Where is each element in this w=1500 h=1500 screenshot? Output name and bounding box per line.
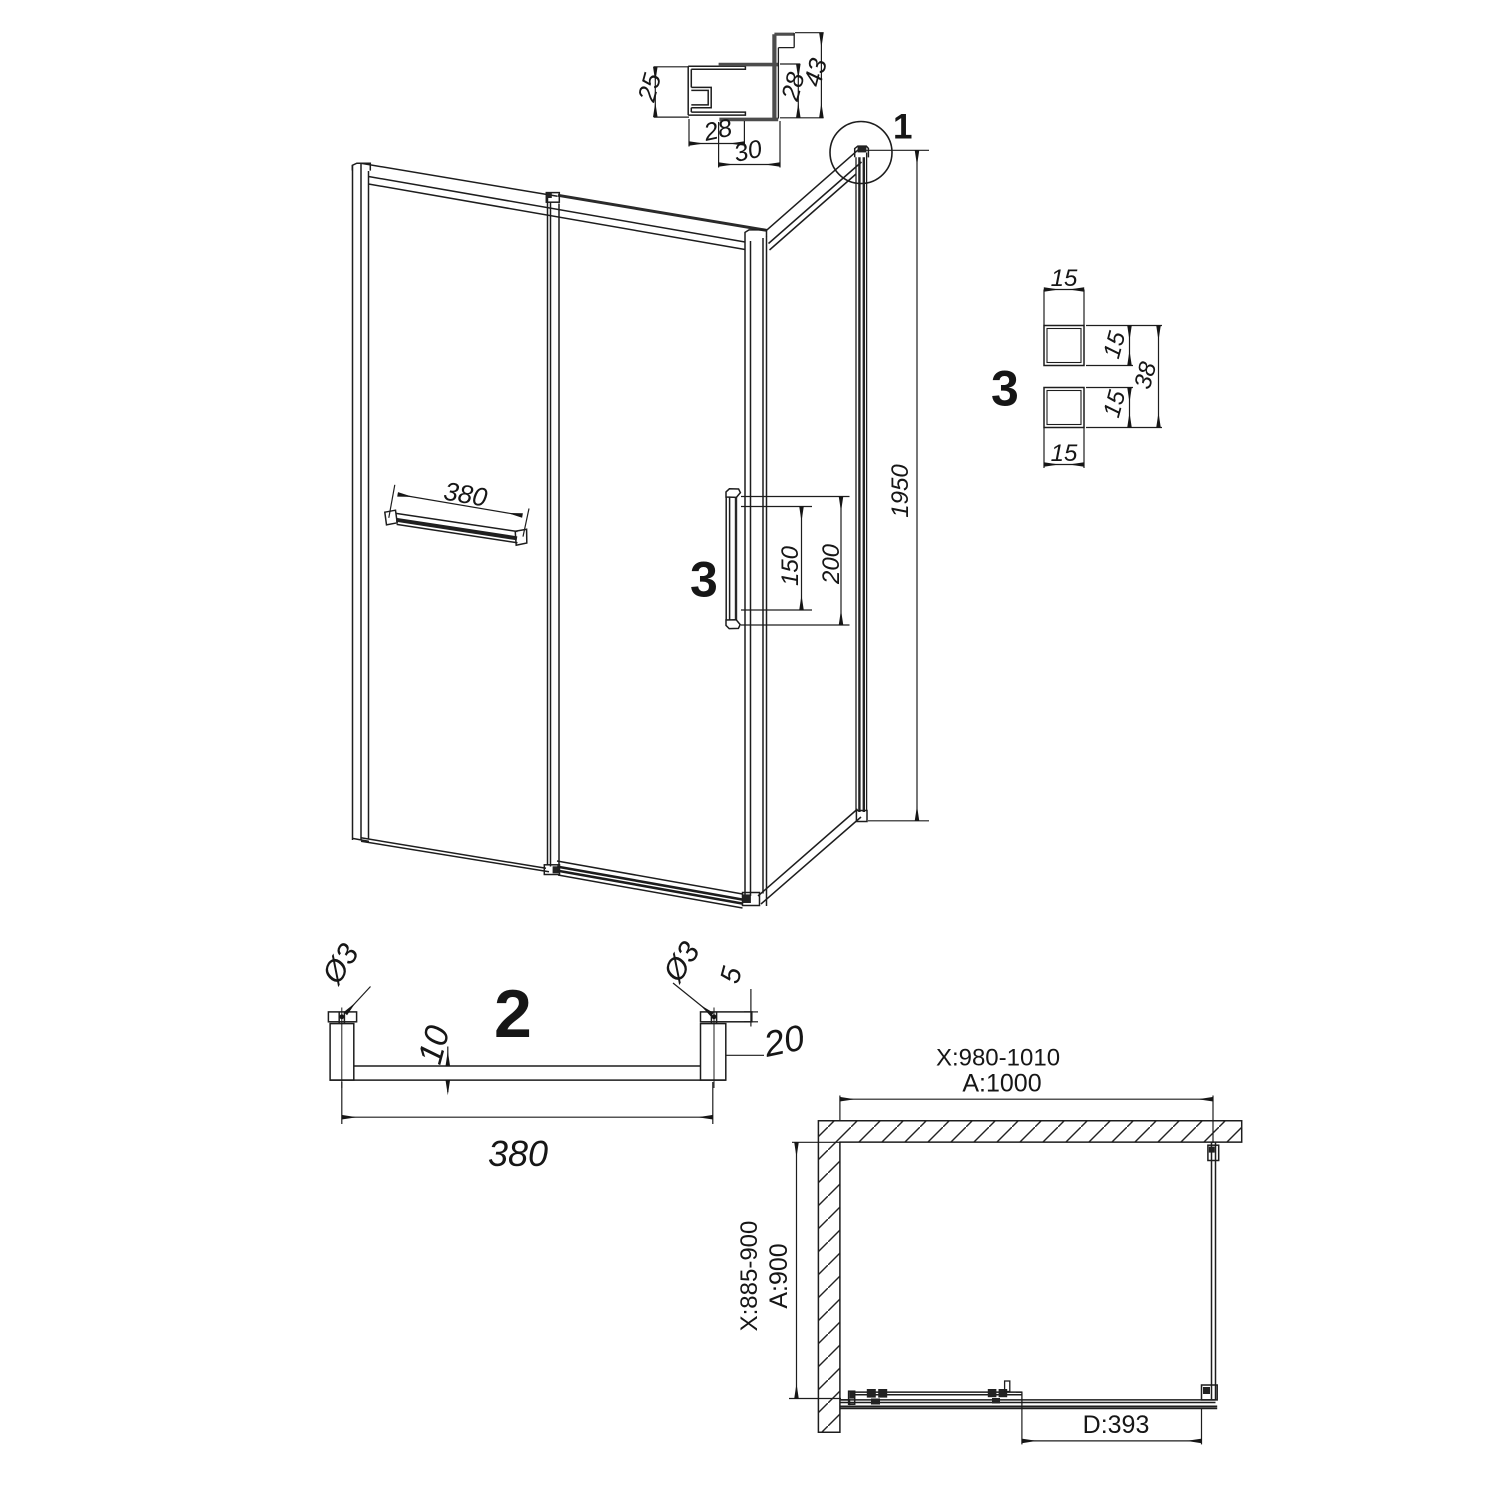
svg-text:200: 200 bbox=[818, 543, 845, 585]
svg-text:2: 2 bbox=[494, 976, 532, 1052]
svg-text:A:1000: A:1000 bbox=[962, 1070, 1041, 1098]
svg-text:X:885-900: X:885-900 bbox=[736, 1221, 763, 1332]
svg-text:28: 28 bbox=[700, 114, 734, 147]
svg-text:3: 3 bbox=[690, 552, 718, 608]
svg-text:30: 30 bbox=[731, 135, 764, 168]
svg-text:38: 38 bbox=[1129, 359, 1162, 392]
svg-text:X:980-1010: X:980-1010 bbox=[936, 1045, 1060, 1072]
svg-text:15: 15 bbox=[1051, 440, 1078, 467]
svg-text:20: 20 bbox=[759, 1016, 808, 1065]
svg-text:A:900: A:900 bbox=[765, 1243, 793, 1308]
svg-text:1950: 1950 bbox=[887, 464, 914, 518]
svg-text:5: 5 bbox=[714, 963, 748, 986]
svg-text:15: 15 bbox=[1098, 387, 1131, 420]
svg-text:15: 15 bbox=[1098, 328, 1131, 361]
svg-text:380: 380 bbox=[442, 476, 490, 513]
svg-text:380: 380 bbox=[488, 1133, 548, 1174]
svg-text:25: 25 bbox=[632, 70, 667, 105]
svg-text:D:393: D:393 bbox=[1083, 1411, 1150, 1439]
svg-text:Ø3: Ø3 bbox=[316, 938, 366, 991]
svg-text:Ø3: Ø3 bbox=[657, 936, 707, 989]
svg-text:150: 150 bbox=[777, 545, 804, 586]
svg-text:3: 3 bbox=[991, 361, 1019, 417]
svg-text:1: 1 bbox=[893, 108, 912, 147]
svg-text:43: 43 bbox=[799, 55, 833, 89]
svg-text:10: 10 bbox=[411, 1022, 458, 1068]
svg-text:15: 15 bbox=[1051, 265, 1078, 292]
